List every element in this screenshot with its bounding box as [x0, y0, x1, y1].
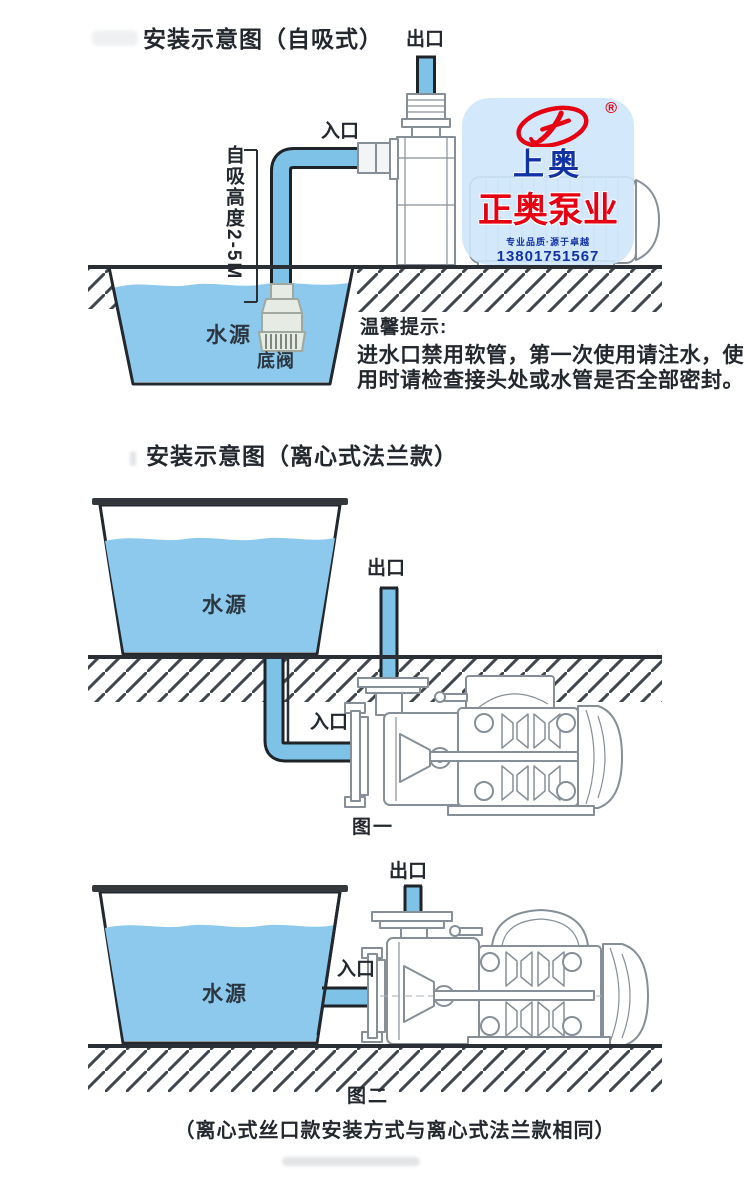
section3-outlet-label: 出口 [389, 861, 427, 883]
suction-height-label: 自吸高度2-5M [222, 145, 244, 320]
section2-inlet-label: 入口 [310, 712, 348, 734]
scan-artifact [92, 30, 138, 46]
brand-watermark: ® 上奥 正奥泵业 专业品质·源于卓越 13801751567 [462, 98, 634, 265]
section2-outlet-label: 出口 [367, 558, 405, 580]
diagram-artwork [0, 0, 750, 1177]
section3-tank [92, 885, 348, 1043]
section1-outlet-label: 出口 [406, 29, 444, 51]
foot-valve-label: 底阀 [257, 351, 295, 372]
section3-inlet-label: 入口 [337, 959, 375, 981]
section1-water-source-label: 水源 [206, 324, 252, 348]
section1-inlet-label: 入口 [321, 121, 359, 143]
scan-artifact [130, 451, 136, 466]
brand-phone: 13801751567 [497, 248, 600, 265]
installation-diagram-page: 安装示意图（自吸式） 出口 入口 自吸高度2-5M 水源 底阀 温馨提示: 进水… [0, 0, 750, 1177]
tips-title: 温馨提示: [360, 317, 447, 339]
section2-outlet-pipe [380, 588, 398, 686]
section3-pump [362, 910, 648, 1046]
section1-title: 安装示意图（自吸式） [143, 26, 383, 52]
brand-name-top: 上奥 [513, 139, 583, 184]
section2-tank [92, 498, 348, 654]
section3-outlet-pipe [404, 886, 422, 915]
figure2-caption: 图二 [347, 1086, 389, 1108]
section2-title: 安装示意图（离心式法兰款） [146, 443, 458, 469]
brand-name-main: 正奥泵业 [478, 182, 618, 233]
brand-slogan: 专业品质·源于卓越 [506, 235, 590, 248]
bottom-note: （离心式丝口款安装方式与离心式法兰款相同） [95, 1120, 695, 1143]
registered-mark: ® [605, 100, 617, 118]
tips-line-1: 进水口禁用软管，第一次使用请注水，使 [357, 344, 744, 368]
figure1-caption: 图一 [352, 817, 394, 839]
scan-artifact [282, 1157, 420, 1166]
section1-outlet-pipe [416, 57, 436, 96]
section3-water-source-label: 水源 [202, 983, 248, 1007]
section2-water-source-label: 水源 [202, 594, 248, 618]
tips-line-2: 用时请检查接头处或水管是否全部密封。 [357, 369, 744, 393]
